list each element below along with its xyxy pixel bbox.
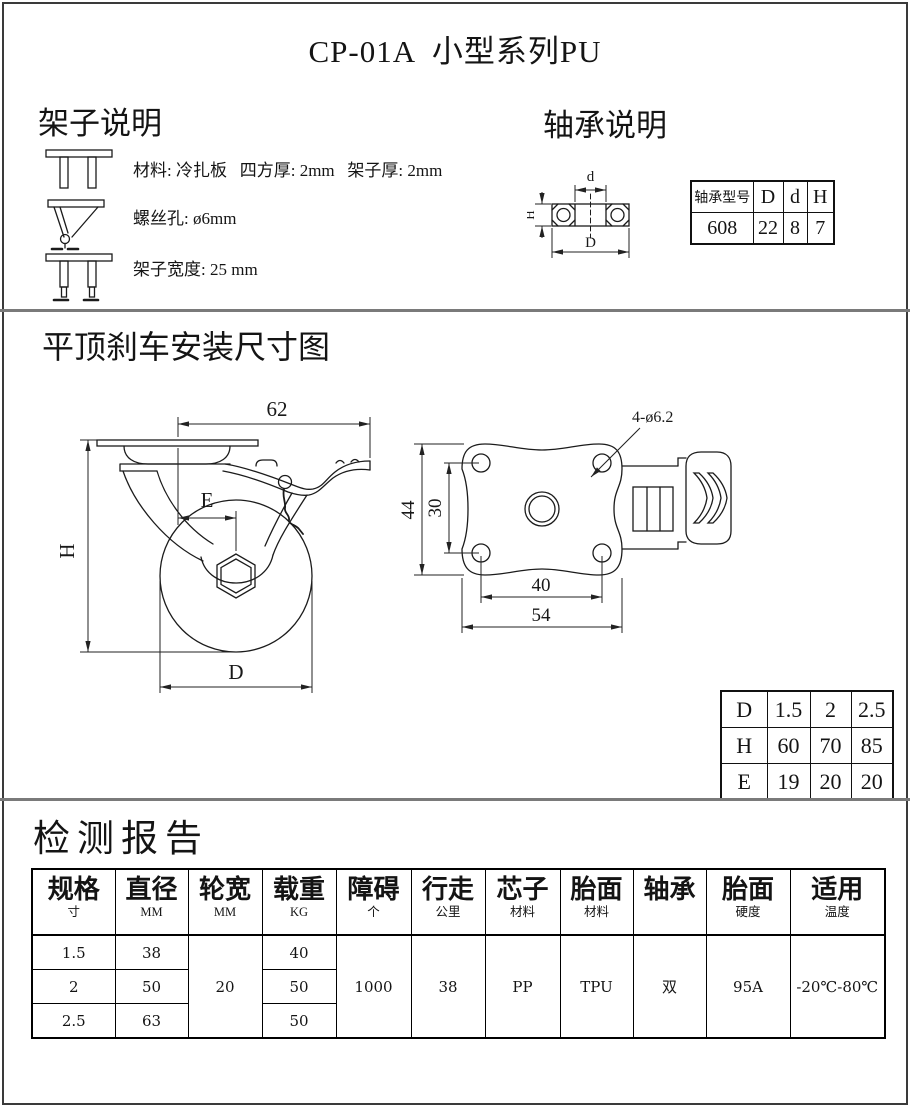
svg-text:54: 54 — [532, 605, 552, 626]
bearing-dim-H: H — [527, 192, 551, 238]
report-cell-diameter: 63 — [115, 1004, 188, 1039]
col-temperature-unit: 温度 — [791, 905, 885, 920]
dhe-cell: 1.5 — [767, 691, 810, 728]
report-cell-size: 2 — [32, 970, 115, 1004]
col-temperature: 适用温度 — [790, 869, 885, 935]
bearing-H-header: H — [807, 181, 834, 213]
report-cell-load: 50 — [262, 970, 336, 1004]
dhe-label-D: D — [721, 691, 767, 728]
svg-text:E: E — [201, 488, 214, 512]
install-section-heading: 平顶刹车安装尺寸图 — [42, 322, 330, 368]
svg-text:62: 62 — [267, 397, 288, 421]
test-report-table: 规格寸 直径MM 轮宽MM 载重KG 障碍个 行走公里 芯子材料 胎面材料 轴承… — [31, 868, 886, 1039]
col-load: 载重KG — [262, 869, 336, 935]
bearing-cross-section-drawing: d H D — [527, 161, 679, 275]
col-load-unit: KG — [263, 905, 336, 920]
dhe-dimension-table: D 1.5 2 2.5 H 60 70 85 E 19 20 20 — [720, 690, 894, 801]
col-diameter-label: 直径 — [116, 875, 188, 905]
dhe-cell: 70 — [810, 728, 851, 764]
col-bearing-label: 轴承 — [634, 875, 706, 905]
caster-structure — [97, 440, 370, 652]
holes-callout: 4-ø6.2 — [591, 409, 673, 477]
bearing-section-heading: 轴承说明 — [543, 100, 667, 145]
svg-text:D: D — [228, 660, 243, 684]
bearing-D-value: 22 — [753, 213, 783, 245]
col-travel-unit: 公里 — [412, 905, 485, 920]
frame-section-heading: 架子说明 — [38, 98, 162, 143]
svg-text:H: H — [55, 543, 79, 558]
table-row: D 1.5 2 2.5 — [721, 691, 893, 728]
col-tread: 胎面材料 — [560, 869, 633, 935]
datasheet-page: CP-01A 小型系列PU 架子说明 材料: 冷扎板 四方厚: 2mm 架子厚:… — [0, 0, 910, 1107]
col-hardness-label: 胎面 — [707, 875, 790, 905]
dhe-cell: 2.5 — [851, 691, 893, 728]
svg-text:30: 30 — [425, 499, 446, 518]
dhe-cell: 19 — [767, 764, 810, 801]
col-travel: 行走公里 — [411, 869, 485, 935]
report-cell-load: 40 — [262, 935, 336, 970]
caster-side-view-drawing: 62 E H D — [45, 394, 385, 708]
section-divider-1 — [0, 309, 910, 312]
col-temperature-label: 适用 — [791, 875, 885, 905]
report-cell-size: 2.5 — [32, 1004, 115, 1039]
bearing-D-header: D — [753, 181, 783, 213]
report-cell-temperature: -20℃-80℃ — [790, 935, 885, 1038]
dim-hole-spacing-30: 30 — [425, 463, 479, 553]
report-header-row: 规格寸 直径MM 轮宽MM 载重KG 障碍个 行走公里 芯子材料 胎面材料 轴承… — [32, 869, 885, 935]
svg-text:D: D — [585, 235, 596, 251]
col-core-label: 芯子 — [486, 875, 560, 905]
col-obstacle-label: 障碍 — [337, 875, 411, 905]
report-cell-hardness: 95A — [706, 935, 790, 1038]
bearing-dim-D: D — [552, 228, 629, 258]
col-bearing-unit — [634, 905, 706, 920]
table-row: E 19 20 20 — [721, 764, 893, 801]
col-obstacle-unit: 个 — [337, 905, 411, 920]
dhe-cell: 20 — [851, 764, 893, 801]
fork-width-view-icon — [44, 252, 116, 306]
svg-text:H: H — [527, 210, 537, 219]
report-cell-core-material: PP — [485, 935, 560, 1038]
report-cell-travel: 38 — [411, 935, 485, 1038]
col-hardness: 胎面硬度 — [706, 869, 790, 935]
col-travel-label: 行走 — [412, 875, 485, 905]
dhe-cell: 2 — [810, 691, 851, 728]
report-cell-size: 1.5 — [32, 935, 115, 970]
col-size: 规格寸 — [32, 869, 115, 935]
bearing-H-value: 7 — [807, 213, 834, 245]
col-tread-unit: 材料 — [561, 905, 633, 920]
col-bearing: 轴承 — [633, 869, 706, 935]
bearing-model-header: 轴承型号 — [691, 181, 753, 213]
dim-hole-spacing-40: 40 — [481, 556, 602, 603]
dhe-label-E: E — [721, 764, 767, 801]
col-obstacle: 障碍个 — [336, 869, 411, 935]
col-diameter-unit: MM — [116, 905, 188, 920]
report-cell-obstacle: 1000 — [336, 935, 411, 1038]
frame-width-note: 架子宽度: 25 mm — [133, 255, 258, 280]
table-row: 1.5 38 20 40 1000 38 PP TPU 双 95A -20℃-8… — [32, 935, 885, 970]
col-wheel-width-label: 轮宽 — [189, 875, 262, 905]
table-row: H 60 70 85 — [721, 728, 893, 764]
dhe-cell: 85 — [851, 728, 893, 764]
dhe-cell: 20 — [810, 764, 851, 801]
swivel-side-view-icon — [46, 198, 110, 254]
col-core: 芯子材料 — [485, 869, 560, 935]
fork-front-view-icon — [44, 146, 116, 196]
frame-material-note: 材料: 冷扎板 四方厚: 2mm 架子厚: 2mm — [133, 156, 442, 181]
dhe-cell: 60 — [767, 728, 810, 764]
svg-text:44: 44 — [400, 500, 419, 520]
report-cell-wheel-width: 20 — [188, 935, 262, 1038]
svg-text:4-ø6.2: 4-ø6.2 — [632, 409, 673, 426]
dim-total-length: 62 — [178, 397, 370, 458]
bearing-d-header: d — [783, 181, 807, 213]
section-divider-2 — [0, 798, 910, 801]
bearing-model-value: 608 — [691, 213, 753, 245]
col-hardness-unit: 硬度 — [707, 905, 790, 920]
report-cell-load: 50 — [262, 1004, 336, 1039]
page-title: CP-01A 小型系列PU — [0, 26, 910, 71]
svg-text:d: d — [587, 169, 595, 185]
col-core-unit: 材料 — [486, 905, 560, 920]
col-load-label: 载重 — [263, 875, 336, 905]
dim-height-H: H — [55, 440, 241, 652]
col-tread-label: 胎面 — [561, 875, 633, 905]
plate-structure — [462, 444, 731, 575]
bearing-d-value: 8 — [783, 213, 807, 245]
report-section-heading: 检测报告 — [33, 808, 209, 862]
col-wheel-width-unit: MM — [189, 905, 262, 920]
col-diameter: 直径MM — [115, 869, 188, 935]
svg-text:40: 40 — [532, 575, 551, 596]
report-cell-diameter: 50 — [115, 970, 188, 1004]
report-cell-diameter: 38 — [115, 935, 188, 970]
bearing-body — [552, 194, 629, 238]
col-wheel-width: 轮宽MM — [188, 869, 262, 935]
report-cell-tread-material: TPU — [560, 935, 633, 1038]
col-size-label: 规格 — [33, 875, 115, 905]
screw-hole-note: 螺丝孔: ø6mm — [133, 204, 236, 229]
col-size-unit: 寸 — [33, 905, 115, 920]
table-row: 轴承型号 D d H — [691, 181, 834, 213]
bearing-spec-table: 轴承型号 D d H 608 22 8 7 — [690, 180, 835, 245]
report-cell-bearing: 双 — [633, 935, 706, 1038]
table-row: 608 22 8 7 — [691, 213, 834, 245]
dhe-label-H: H — [721, 728, 767, 764]
mounting-plate-top-view-drawing: 4-ø6.2 44 30 40 54 — [400, 394, 760, 658]
